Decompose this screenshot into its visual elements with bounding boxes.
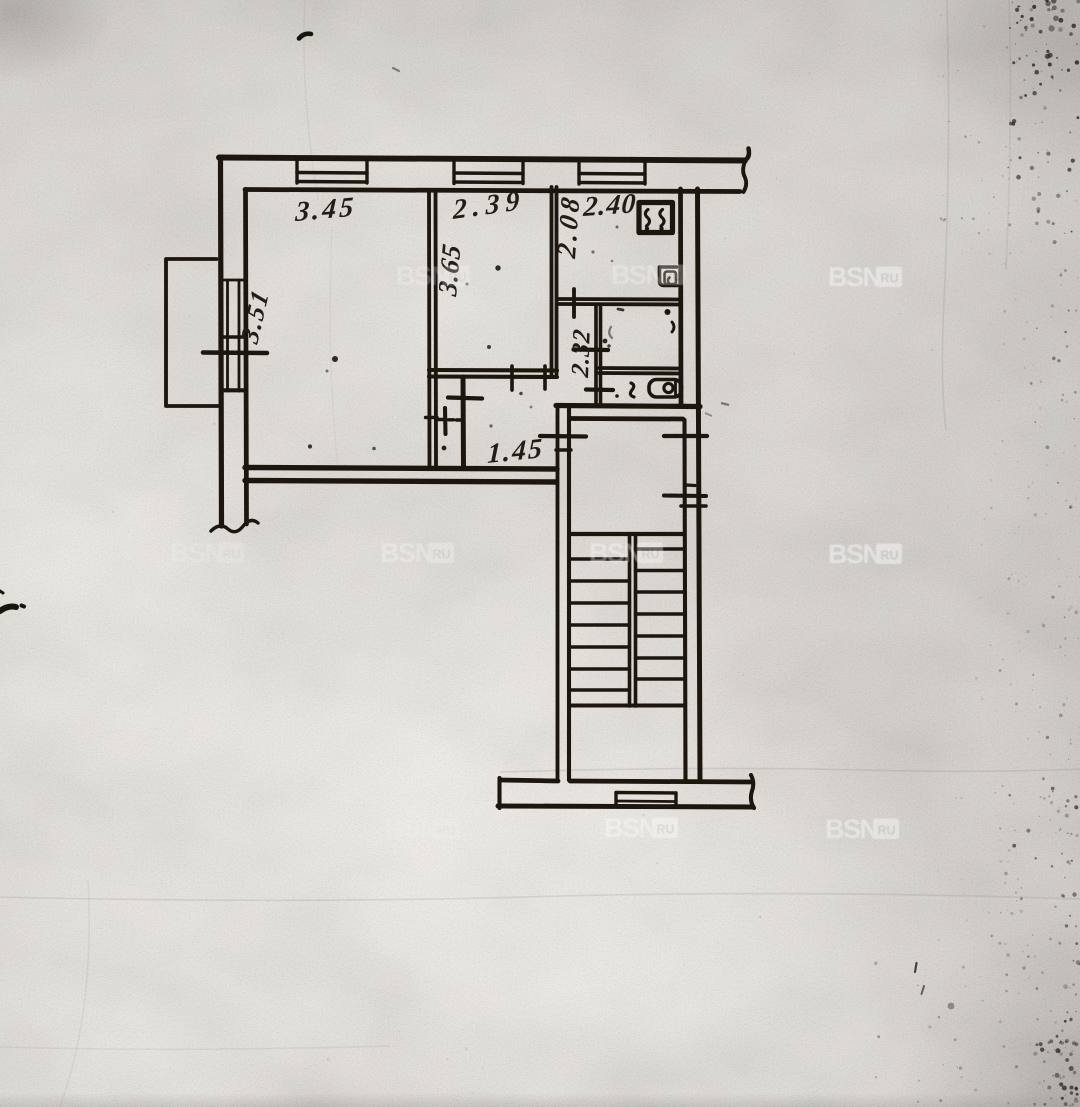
svg-text:RU: RU <box>449 271 467 285</box>
svg-text:2.08: 2.08 <box>551 191 585 261</box>
svg-text:RU: RU <box>433 548 451 562</box>
svg-text:RU: RU <box>664 270 682 284</box>
svg-text:3.45: 3.45 <box>294 192 357 229</box>
svg-text:BSN: BSN <box>170 538 223 568</box>
svg-text:BSN: BSN <box>611 260 664 290</box>
svg-text:2.40: 2.40 <box>582 188 638 223</box>
svg-text:RU: RU <box>881 272 899 286</box>
svg-text:BSN: BSN <box>828 539 881 569</box>
svg-text:2.32: 2.32 <box>567 327 595 380</box>
svg-text:BSN: BSN <box>385 814 438 844</box>
svg-text:RU: RU <box>642 548 660 562</box>
svg-text:RU: RU <box>223 548 241 562</box>
svg-text:1.45: 1.45 <box>487 433 545 470</box>
svg-text:BSN: BSN <box>828 262 881 292</box>
svg-text:BSN: BSN <box>380 538 433 568</box>
svg-text:RU: RU <box>881 549 899 563</box>
svg-text:RU: RU <box>438 824 456 838</box>
svg-text:BSN: BSN <box>604 813 657 843</box>
svg-text:BSN: BSN <box>825 814 878 844</box>
svg-text:RU: RU <box>878 824 896 838</box>
svg-text:BSN: BSN <box>396 261 449 291</box>
svg-text:RU: RU <box>657 823 675 837</box>
svg-text:BSN: BSN <box>589 538 642 568</box>
